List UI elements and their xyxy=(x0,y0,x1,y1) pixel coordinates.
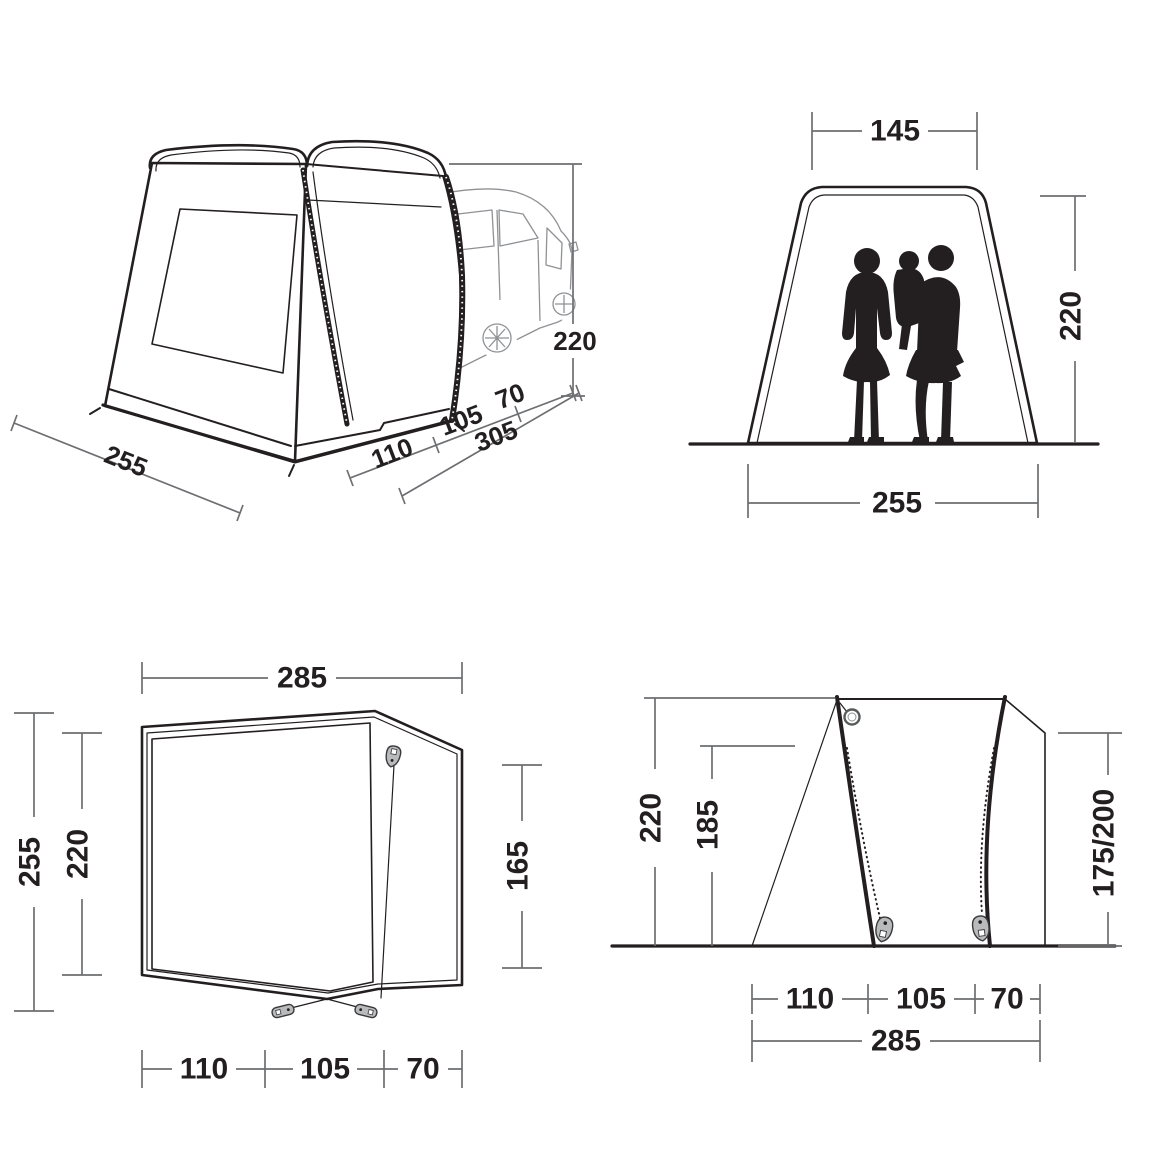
plan-peg-right xyxy=(354,1003,378,1018)
dim-plan-bottom-segments: 110 105 70 xyxy=(142,1050,462,1088)
plan-door-guy-lines xyxy=(271,999,378,1019)
dim-front-base: 255 xyxy=(748,464,1038,520)
tent-3d xyxy=(90,141,464,476)
van-wheel-rear xyxy=(483,324,511,352)
dim-side-bottom-segments: 110 105 70 xyxy=(752,983,1040,1016)
dim-label-perspective-255: 255 xyxy=(100,439,151,483)
van-wheel-far xyxy=(553,293,575,315)
dim-label-side-175-200: 175/200 xyxy=(1088,789,1121,897)
tent-front-face xyxy=(105,163,306,461)
side-vehicle-profile xyxy=(1005,699,1045,946)
perspective-view: 255 110 105 70 305 220 xyxy=(11,141,597,521)
dim-plan-depth-inner: 220 xyxy=(62,733,103,975)
side-front-edge xyxy=(837,697,874,946)
dim-label-perspective-70: 70 xyxy=(491,377,529,415)
dim-label-front-220: 220 xyxy=(1055,291,1088,341)
dim-label-plan-105: 105 xyxy=(300,1053,350,1086)
dim-label-plan-110: 110 xyxy=(180,1053,228,1086)
dim-label-plan-285: 285 xyxy=(277,662,327,695)
dim-label-perspective-220: 220 xyxy=(553,326,596,356)
dim-side-height: 220 xyxy=(635,698,836,946)
dim-plan-side-depth: 165 xyxy=(502,765,543,968)
dim-label-side-70: 70 xyxy=(990,983,1023,1016)
tent-dimension-diagram: 255 110 105 70 305 220 xyxy=(0,0,1172,1172)
dim-label-front-255: 255 xyxy=(872,487,922,520)
dim-label-front-145: 145 xyxy=(870,115,920,148)
dim-label-plan-255: 255 xyxy=(14,837,47,887)
dim-label-plan-220: 220 xyxy=(62,829,95,879)
side-peak-ring xyxy=(840,703,860,725)
dim-label-side-110: 110 xyxy=(786,983,834,1016)
dim-label-side-185: 185 xyxy=(692,800,725,850)
side-dimensions: 220 185 175/200 110 105 70 285 xyxy=(635,698,1123,1062)
side-zip-pull-front xyxy=(873,916,894,944)
dim-height: 220 xyxy=(449,164,597,396)
dim-side-attachment-height: 175/200 xyxy=(1058,733,1122,946)
side-guy-line xyxy=(752,700,837,946)
front-view: 145 220 255 xyxy=(690,112,1098,520)
side-rear-edge xyxy=(986,697,1005,946)
dim-label-side-105: 105 xyxy=(896,983,946,1016)
front-tent-outline xyxy=(748,187,1037,443)
van-windows xyxy=(458,210,562,321)
plan-view: 285 255 220 165 110 105 70 xyxy=(14,662,543,1089)
side-view: 220 185 175/200 110 105 70 285 xyxy=(612,697,1122,1062)
dim-plan-width: 285 xyxy=(142,662,462,695)
dim-plan-depth-total: 255 xyxy=(14,713,55,1011)
dim-front-height: 220 xyxy=(1040,196,1088,443)
plan-outline xyxy=(142,711,462,999)
dim-side-inner-height: 185 xyxy=(692,746,796,946)
side-zip-front xyxy=(847,748,880,918)
dim-top-width: 145 xyxy=(812,112,977,170)
plan-peg-left xyxy=(271,1003,295,1018)
diagram-page: 255 110 105 70 305 220 xyxy=(0,0,1172,1172)
dim-label-side-285: 285 xyxy=(871,1025,921,1058)
dim-label-side-220: 220 xyxy=(635,793,668,843)
dim-label-plan-165: 165 xyxy=(502,841,535,891)
dim-label-plan-70: 70 xyxy=(406,1053,439,1086)
dim-side-width-total: 285 xyxy=(752,1020,1040,1062)
